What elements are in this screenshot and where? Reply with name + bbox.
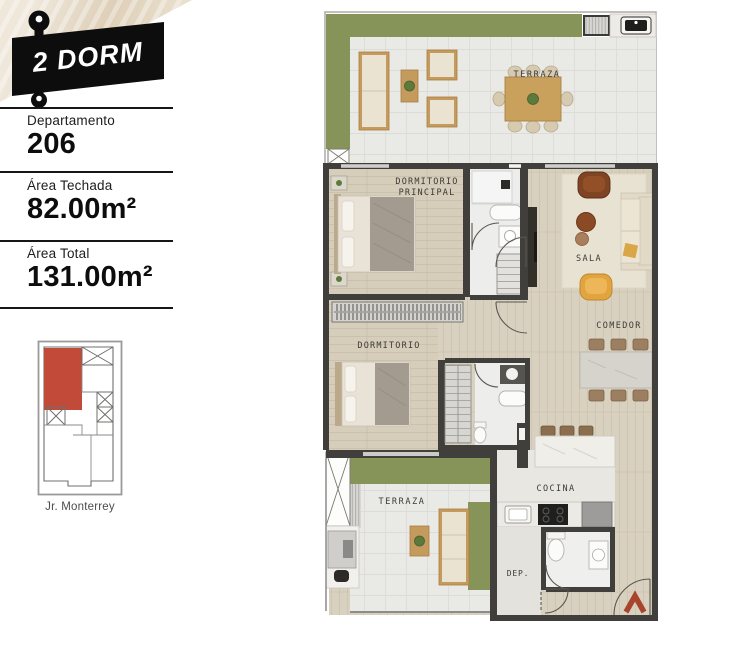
terrace-sofa (439, 509, 469, 585)
area-techada-label: Área Techada (27, 179, 136, 194)
terrace-coffee-table (410, 526, 429, 556)
round-side-table (576, 233, 589, 246)
keyplan (37, 340, 123, 496)
round-coffee-table (577, 213, 596, 232)
column-x-icon (328, 149, 349, 164)
grass-strip-top (326, 14, 582, 37)
bathroom-principal (470, 169, 524, 295)
bar-stools (541, 426, 593, 436)
street-label: Jr. Monterrey (10, 501, 150, 513)
info-departamento: Departamento 206 (27, 114, 115, 159)
outdoor-coffee-table (401, 70, 418, 102)
terraza-bottom (326, 452, 490, 613)
floor-plan: TERRAZA DORMITORIO PRINCIPAL SALA COMEDO… (323, 8, 658, 621)
bed-2 (335, 362, 410, 426)
dorm-badge: 2 DORM (0, 6, 175, 120)
kitchen-island (535, 436, 615, 467)
bed-principal (334, 194, 415, 274)
room-label-terraza-top: TERRAZA (513, 70, 560, 80)
room-label-dorm-principal-1: DORMITORIO (395, 177, 458, 187)
divider-line (0, 307, 173, 309)
divider-line (0, 171, 173, 173)
area-techada-value: 82.00m² (27, 194, 136, 224)
room-label-terraza-bottom: TERRAZA (378, 497, 425, 507)
column-x-icon (326, 452, 350, 526)
sofa (621, 193, 652, 270)
sidebar: 2 DORM Departamento 206 Área Techada 82.… (0, 0, 173, 661)
half-bathroom (546, 532, 610, 589)
room-label-dormitorio: DORMITORIO (357, 341, 420, 351)
highlighted-unit (44, 348, 82, 410)
room-label-sala: SALA (576, 254, 602, 264)
departamento-label: Departamento (27, 114, 115, 129)
terrace-sink (610, 14, 656, 37)
mustard-armchair (580, 274, 612, 300)
divider-line (0, 107, 173, 109)
closet-dorm2 (332, 302, 463, 322)
info-area-total: Área Total 131.00m² (27, 247, 153, 292)
room-label-cocina: COCINA (536, 484, 575, 494)
room-label-dep: DEP. (507, 569, 529, 578)
comedor (580, 339, 652, 401)
area-total-value: 131.00m² (27, 262, 153, 292)
stove-icon (538, 504, 568, 525)
louver-screen (350, 484, 361, 528)
fridge-icon (582, 502, 612, 527)
tv-icon (534, 232, 537, 262)
closet-shelves (445, 365, 471, 443)
dormitorio-2 (335, 362, 410, 426)
grass-patch (468, 502, 490, 590)
room-label-dorm-principal-2: PRINCIPAL (399, 188, 456, 198)
outdoor-sofa (359, 52, 389, 130)
grass-strip (350, 458, 490, 484)
flyer-canvas: 2 DORM Departamento 206 Área Techada 82.… (0, 0, 735, 661)
terraza-top (326, 14, 656, 164)
desk-chair (334, 570, 349, 582)
brown-armchair (578, 172, 610, 198)
desk-nook (326, 526, 359, 588)
info-area-techada: Área Techada 82.00m² (27, 179, 136, 224)
grill-icon (583, 15, 610, 36)
divider-line (0, 240, 173, 242)
departamento-value: 206 (27, 129, 115, 159)
room-label-comedor: COMEDOR (596, 321, 642, 331)
kitchen-sink (505, 506, 531, 523)
area-total-label: Área Total (27, 247, 153, 262)
